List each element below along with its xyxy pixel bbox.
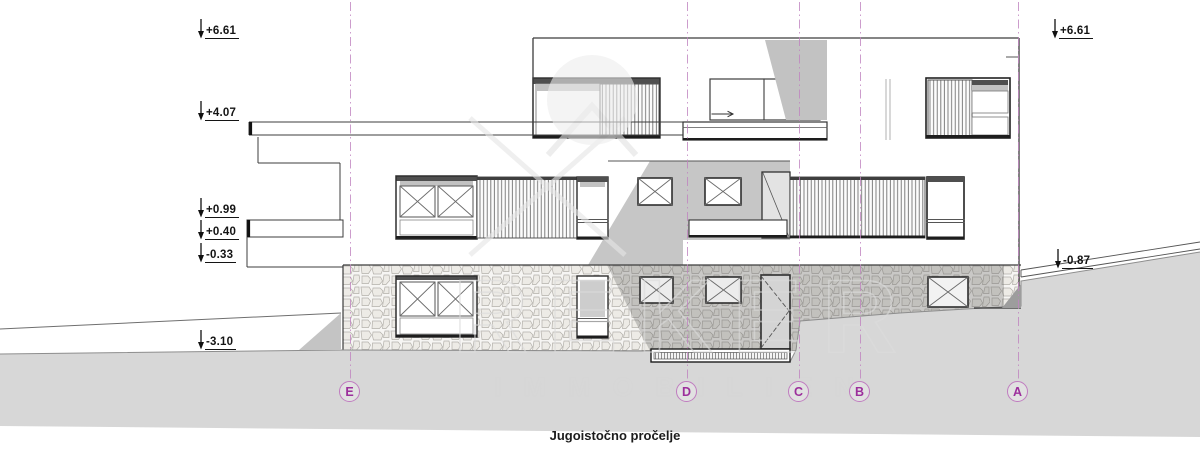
level-label: -0.87 <box>1062 255 1093 269</box>
level-label: -3.10 <box>205 336 236 350</box>
level-label: +4.07 <box>205 107 239 121</box>
level-marker-minus087: -0.87 <box>1053 252 1093 269</box>
grid-line-E <box>350 2 351 380</box>
window-top-right <box>926 78 1010 138</box>
shutter-band-mid-right <box>790 177 925 238</box>
level-label: +0.40 <box>205 226 239 240</box>
grid-label: D <box>682 385 691 399</box>
grid-label: C <box>794 385 803 399</box>
level-marker-minus033: -0.33 <box>196 246 236 263</box>
level-marker-plus661-right: +6.61 <box>1050 22 1093 39</box>
balcony-parapet-top <box>683 122 827 140</box>
drawing-title: Jugoistočno pročelje <box>550 428 681 443</box>
level-marker-plus040: +0.40 <box>196 223 239 240</box>
left-grade-wedge <box>299 313 341 350</box>
level-marker-minus310: -3.10 <box>196 333 236 350</box>
grid-bubble-E: E <box>339 381 360 402</box>
left-grade-line <box>0 313 341 329</box>
level-label: +6.61 <box>1059 25 1093 39</box>
window-mid-right <box>927 177 964 239</box>
grid-bubble-C: C <box>788 381 809 402</box>
grid-label: A <box>1013 385 1022 399</box>
grid-line-D <box>687 2 688 380</box>
grid-label: E <box>345 385 353 399</box>
grid-bubble-D: D <box>676 381 697 402</box>
watermark-brand-text: REKER <box>453 259 917 375</box>
grid-line-B <box>860 2 861 380</box>
grid-bubble-A: A <box>1007 381 1028 402</box>
level-label: -0.33 <box>205 249 236 263</box>
window-basement-right <box>928 277 968 307</box>
level-marker-plus099: +0.99 <box>196 201 239 218</box>
window-mid-narrow <box>577 177 608 239</box>
window-mid-left <box>396 176 477 239</box>
level-label: +6.61 <box>205 25 239 39</box>
grid-label: B <box>855 385 864 399</box>
level-label: +0.99 <box>205 204 239 218</box>
grid-bubble-B: B <box>849 381 870 402</box>
level-marker-plus661-left: +6.61 <box>196 22 239 39</box>
level-marker-plus407: +4.07 <box>196 104 239 121</box>
elevation-drawing-sheet: REKER IMMOBILIEN E D C B A +6.61 +4.07 +… <box>0 0 1200 450</box>
grid-line-C <box>799 2 800 380</box>
grid-line-A <box>1018 2 1019 380</box>
